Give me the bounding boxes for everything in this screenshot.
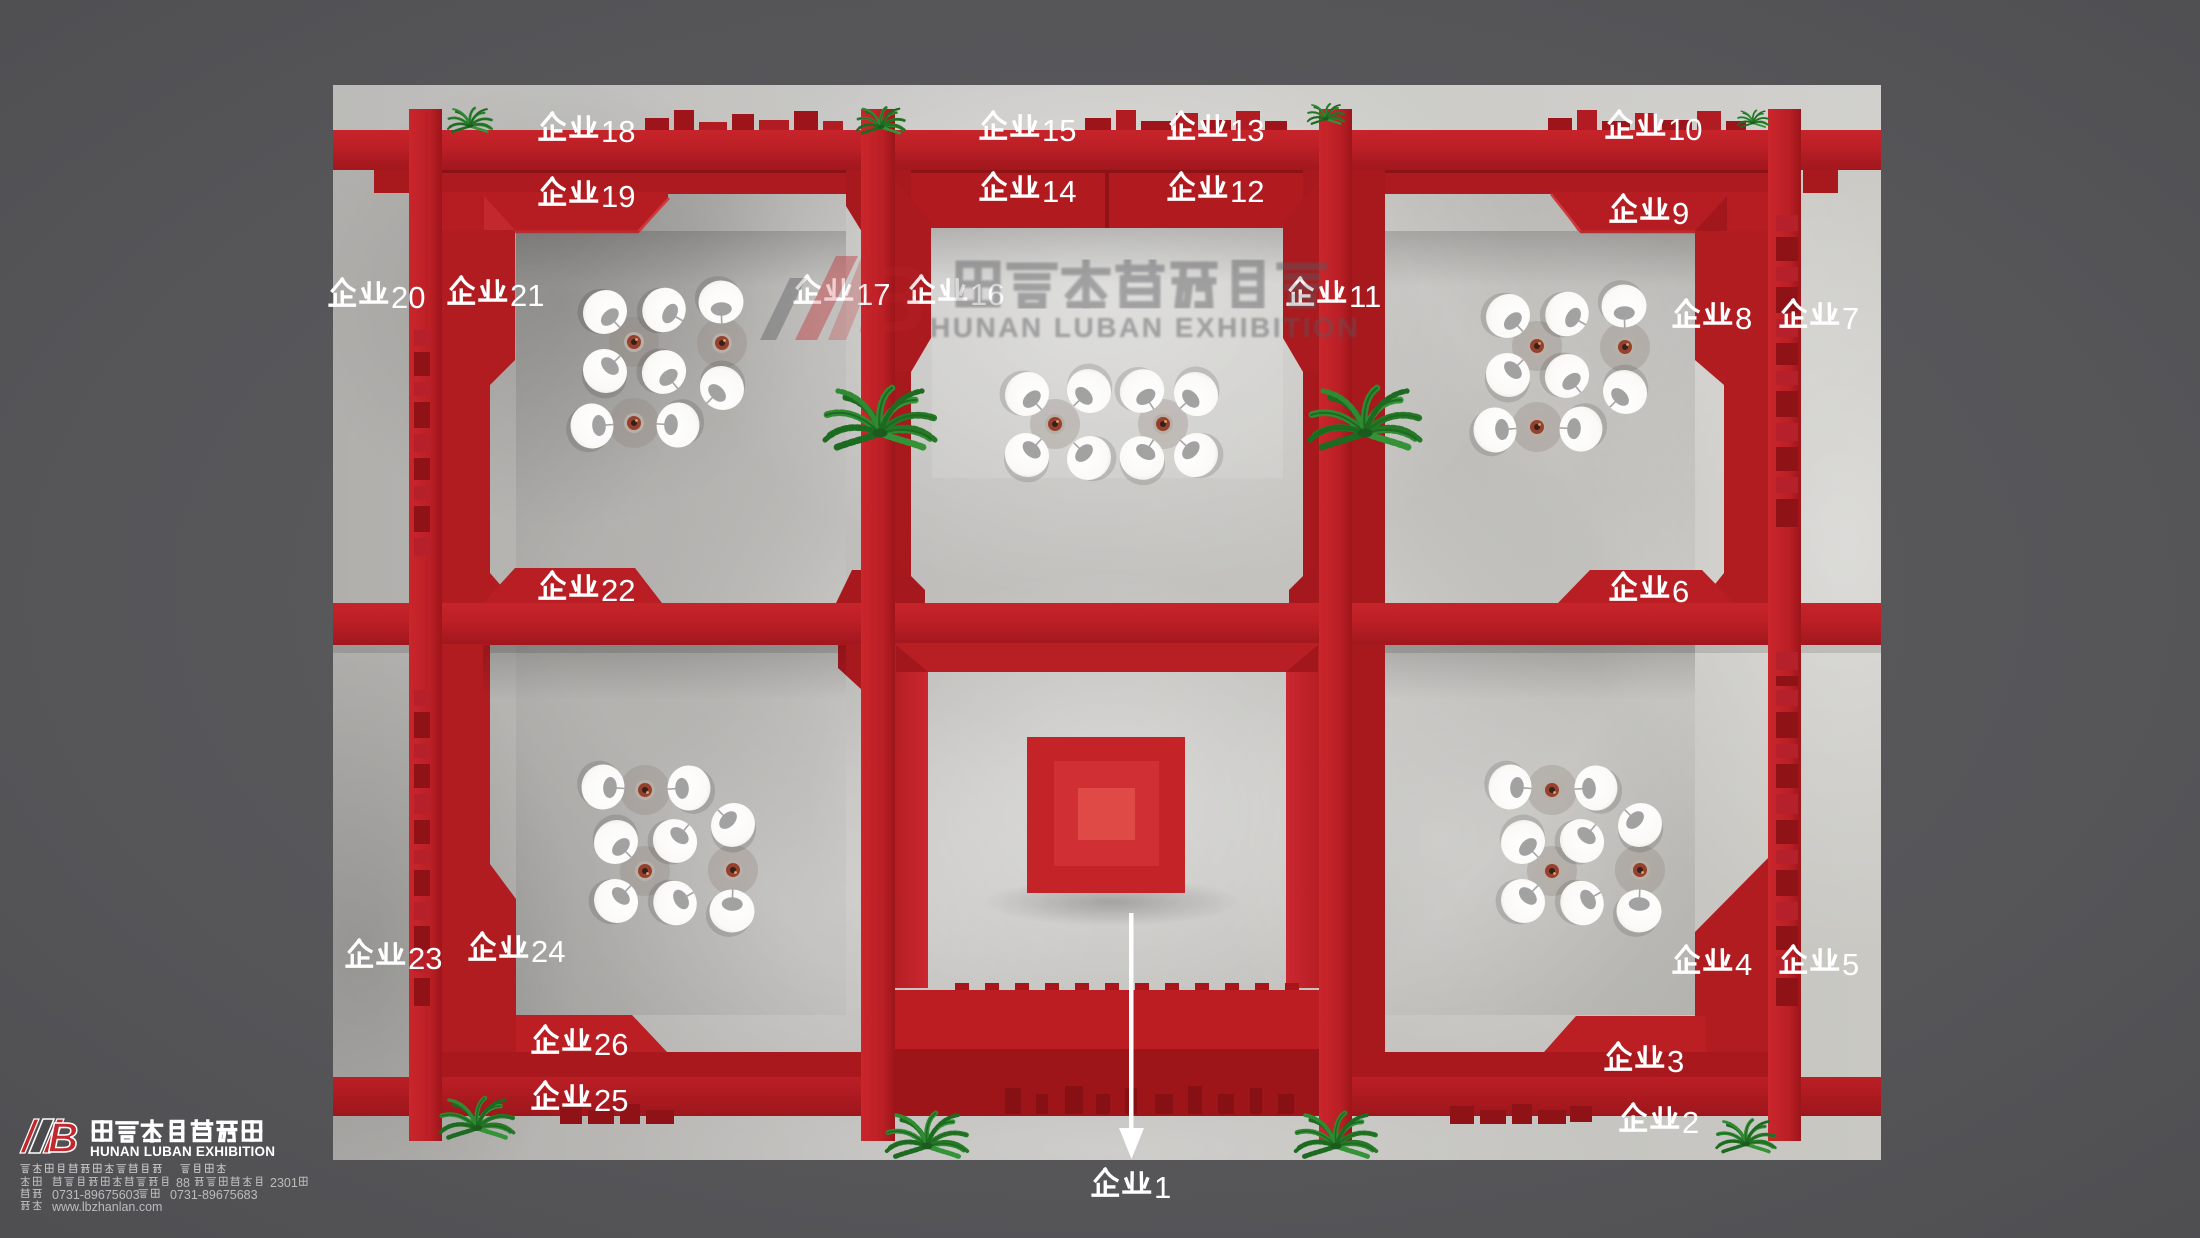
svg-text:14: 14 [1042,174,1076,209]
svg-text:25: 25 [594,1083,628,1118]
svg-text:6: 6 [1672,574,1689,609]
svg-text:2301: 2301 [270,1176,298,1190]
svg-text:21: 21 [510,278,544,313]
svg-text:7: 7 [1842,301,1859,336]
svg-text:4: 4 [1735,947,1752,982]
svg-text:12: 12 [1230,174,1264,209]
svg-text:5: 5 [1842,947,1859,982]
svg-text:www.lbzhanlan.com: www.lbzhanlan.com [51,1200,162,1214]
svg-text:26: 26 [594,1027,628,1062]
svg-text:0731-89675683: 0731-89675683 [170,1188,258,1202]
svg-text:13: 13 [1230,113,1264,148]
svg-text:22: 22 [601,573,635,608]
svg-text:9: 9 [1672,196,1689,231]
svg-text:8: 8 [1735,301,1752,336]
svg-text:B: B [48,1114,78,1161]
svg-text:15: 15 [1042,113,1076,148]
svg-text:10: 10 [1668,112,1702,147]
svg-text:20: 20 [391,280,425,315]
svg-text:2: 2 [1682,1105,1699,1140]
svg-text:HUNAN LUBAN EXHIBITION: HUNAN LUBAN EXHIBITION [930,312,1360,343]
svg-text:11: 11 [1349,279,1381,314]
svg-text:19: 19 [601,179,635,214]
svg-text:HUNAN LUBAN EXHIBITION: HUNAN LUBAN EXHIBITION [90,1144,275,1159]
svg-text:24: 24 [531,934,565,969]
svg-text:B: B [858,246,927,353]
svg-text:3: 3 [1667,1044,1684,1079]
svg-text:1: 1 [1154,1170,1171,1205]
svg-text:23: 23 [408,941,442,976]
svg-text:18: 18 [601,114,635,149]
